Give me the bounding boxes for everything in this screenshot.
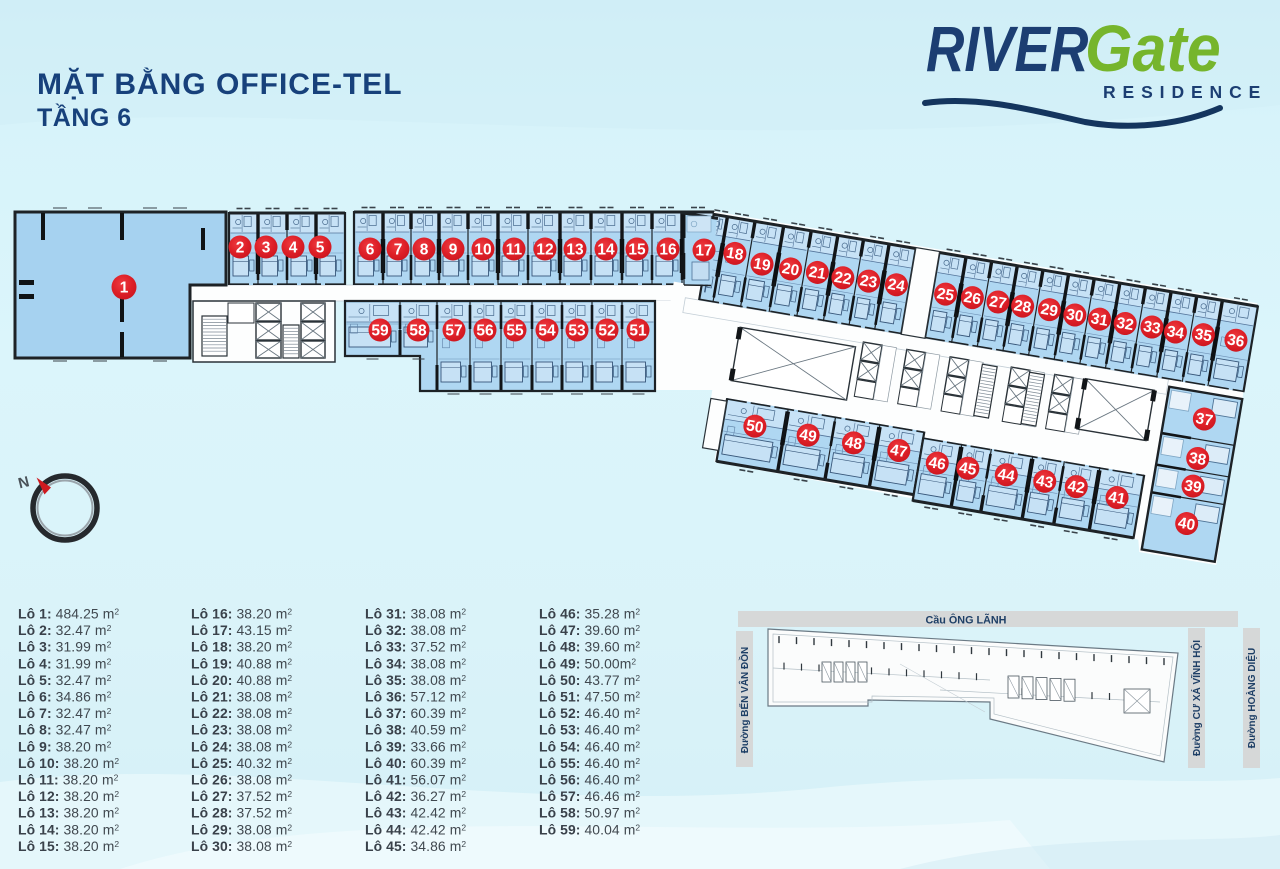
svg-text:Lô 23: 38.08 m2: Lô 23: 38.08 m2 — [191, 722, 292, 738]
svg-text:8: 8 — [420, 241, 429, 258]
svg-text:Lô 24: 38.08 m2: Lô 24: 38.08 m2 — [191, 738, 292, 754]
svg-text:43: 43 — [1035, 472, 1055, 492]
svg-text:22: 22 — [833, 269, 853, 289]
svg-text:27: 27 — [988, 293, 1008, 313]
svg-text:Lô 20: 40.88 m2: Lô 20: 40.88 m2 — [191, 672, 292, 688]
svg-text:Lô 28: 37.52 m2: Lô 28: 37.52 m2 — [191, 805, 292, 821]
svg-text:Lô 4: 31.99 m2: Lô 4: 31.99 m2 — [18, 655, 112, 671]
svg-text:Lô 56: 46.40 m2: Lô 56: 46.40 m2 — [539, 772, 640, 788]
svg-text:Lô 10: 38.20 m2: Lô 10: 38.20 m2 — [18, 755, 119, 771]
svg-text:2: 2 — [236, 239, 245, 256]
svg-text:Lô 16: 38.20 m2: Lô 16: 38.20 m2 — [191, 606, 292, 622]
svg-text:Lô 26: 38.08 m2: Lô 26: 38.08 m2 — [191, 772, 292, 788]
svg-text:Lô 45: 34.86 m2: Lô 45: 34.86 m2 — [365, 838, 466, 854]
svg-text:41: 41 — [1107, 489, 1127, 509]
svg-text:Lô 8: 32.47 m2: Lô 8: 32.47 m2 — [18, 722, 112, 738]
svg-text:Lô 34: 38.08 m2: Lô 34: 38.08 m2 — [365, 655, 466, 671]
svg-text:TẦNG 6: TẦNG 6 — [37, 103, 132, 132]
svg-text:38: 38 — [1188, 450, 1208, 470]
svg-text:23: 23 — [859, 272, 879, 292]
svg-text:Lô 46: 35.28 m2: Lô 46: 35.28 m2 — [539, 606, 640, 622]
svg-text:18: 18 — [725, 244, 745, 264]
svg-text:Lô 14: 38.20 m2: Lô 14: 38.20 m2 — [18, 821, 119, 837]
svg-text:RESIDENCE: RESIDENCE — [1103, 82, 1267, 102]
svg-text:25: 25 — [936, 285, 956, 305]
svg-text:16: 16 — [659, 241, 677, 258]
svg-text:50: 50 — [745, 417, 765, 437]
svg-text:30: 30 — [1065, 306, 1085, 326]
svg-text:6: 6 — [366, 241, 375, 258]
svg-text:15: 15 — [628, 241, 646, 258]
svg-text:Lô 9: 38.20 m2: Lô 9: 38.20 m2 — [18, 738, 112, 754]
svg-text:39: 39 — [1183, 477, 1203, 497]
svg-text:Gate: Gate — [1085, 12, 1221, 86]
svg-text:49: 49 — [798, 426, 818, 446]
svg-text:Lô 30: 38.08 m2: Lô 30: 38.08 m2 — [191, 838, 292, 854]
svg-text:Lô 38: 40.59 m2: Lô 38: 40.59 m2 — [365, 722, 466, 738]
svg-text:48: 48 — [843, 434, 863, 454]
svg-text:Lô 29: 38.08 m2: Lô 29: 38.08 m2 — [191, 821, 292, 837]
svg-text:45: 45 — [958, 459, 978, 479]
svg-text:40: 40 — [1177, 515, 1197, 535]
svg-text:26: 26 — [962, 289, 982, 309]
svg-text:44: 44 — [996, 466, 1016, 486]
svg-text:4: 4 — [289, 239, 298, 256]
svg-text:Lô 49: 50.00m2: Lô 49: 50.00m2 — [539, 655, 636, 671]
svg-text:Lô 35: 38.08 m2: Lô 35: 38.08 m2 — [365, 672, 466, 688]
svg-text:Lô 5: 32.47 m2: Lô 5: 32.47 m2 — [18, 672, 112, 688]
svg-text:Lô 40: 60.39 m2: Lô 40: 60.39 m2 — [365, 755, 466, 771]
svg-text:Lô 15: 38.20 m2: Lô 15: 38.20 m2 — [18, 838, 119, 854]
svg-text:Lô 22: 38.08 m2: Lô 22: 38.08 m2 — [191, 705, 292, 721]
svg-text:56: 56 — [476, 322, 494, 339]
svg-text:13: 13 — [566, 241, 584, 258]
svg-text:Đường HOÀNG DIỆU: Đường HOÀNG DIỆU — [1245, 648, 1258, 748]
svg-text:28: 28 — [1013, 297, 1033, 317]
svg-text:Lô 2: 32.47 m2: Lô 2: 32.47 m2 — [18, 622, 112, 638]
svg-text:Lô 32: 38.08 m2: Lô 32: 38.08 m2 — [365, 622, 466, 638]
svg-text:Lô 18: 38.20 m2: Lô 18: 38.20 m2 — [191, 639, 292, 655]
svg-text:Lô 6: 34.86 m2: Lô 6: 34.86 m2 — [18, 689, 112, 705]
svg-text:Lô 25: 40.32 m2: Lô 25: 40.32 m2 — [191, 755, 292, 771]
svg-text:Đường CƯ XÁ VĨNH HỘI: Đường CƯ XÁ VĨNH HỘI — [1190, 640, 1203, 756]
svg-text:31: 31 — [1089, 310, 1109, 330]
svg-text:Lô 55: 46.40 m2: Lô 55: 46.40 m2 — [539, 755, 640, 771]
svg-text:Lô 31: 38.08 m2: Lô 31: 38.08 m2 — [365, 606, 466, 622]
svg-text:54: 54 — [538, 322, 556, 339]
svg-text:20: 20 — [781, 260, 801, 280]
svg-text:Lô 33: 37.52 m2: Lô 33: 37.52 m2 — [365, 639, 466, 655]
svg-text:Lô 54: 46.40 m2: Lô 54: 46.40 m2 — [539, 738, 640, 754]
svg-text:Lô 13: 38.20 m2: Lô 13: 38.20 m2 — [18, 805, 119, 821]
svg-text:Lô 36: 57.12 m2: Lô 36: 57.12 m2 — [365, 689, 466, 705]
svg-text:Lô 41: 56.07 m2: Lô 41: 56.07 m2 — [365, 772, 466, 788]
svg-text:Lô 3: 31.99 m2: Lô 3: 31.99 m2 — [18, 639, 112, 655]
svg-text:MẶT BẰNG OFFICE-TEL: MẶT BẰNG OFFICE-TEL — [37, 67, 403, 101]
svg-text:35: 35 — [1193, 326, 1213, 346]
svg-text:7: 7 — [394, 241, 403, 258]
svg-text:Lô 59: 40.04 m2: Lô 59: 40.04 m2 — [539, 821, 640, 837]
svg-text:Lô 27: 37.52 m2: Lô 27: 37.52 m2 — [191, 788, 292, 804]
svg-text:1: 1 — [120, 279, 129, 296]
svg-text:Lô 51: 47.50 m2: Lô 51: 47.50 m2 — [539, 689, 640, 705]
svg-text:57: 57 — [445, 322, 462, 339]
svg-text:5: 5 — [316, 239, 325, 256]
svg-text:Lô 57: 46.46 m2: Lô 57: 46.46 m2 — [539, 788, 640, 804]
svg-text:Lô 52: 46.40 m2: Lô 52: 46.40 m2 — [539, 705, 640, 721]
svg-text:Đường BẾN VÂN ĐỒN: Đường BẾN VÂN ĐỒN — [738, 647, 751, 754]
svg-text:Lô 39: 33.66 m2: Lô 39: 33.66 m2 — [365, 738, 466, 754]
svg-text:10: 10 — [474, 241, 491, 258]
svg-text:RIVER: RIVER — [926, 14, 1089, 85]
svg-text:Lô 37: 60.39 m2: Lô 37: 60.39 m2 — [365, 705, 466, 721]
svg-text:59: 59 — [371, 322, 389, 339]
svg-text:51: 51 — [629, 322, 647, 339]
svg-text:Lô 1: 484.25 m2: Lô 1: 484.25 m2 — [18, 606, 119, 622]
svg-text:Lô 47: 39.60 m2: Lô 47: 39.60 m2 — [539, 622, 640, 638]
svg-text:Lô 7: 32.47 m2: Lô 7: 32.47 m2 — [18, 705, 112, 721]
svg-text:53: 53 — [568, 322, 586, 339]
svg-text:34: 34 — [1165, 323, 1185, 343]
svg-text:46: 46 — [927, 454, 947, 474]
svg-text:24: 24 — [886, 276, 906, 296]
svg-text:Lô 43: 42.42 m2: Lô 43: 42.42 m2 — [365, 805, 466, 821]
svg-text:Lô 58: 50.97 m2: Lô 58: 50.97 m2 — [539, 805, 640, 821]
svg-text:Lô 19: 40.88 m2: Lô 19: 40.88 m2 — [191, 655, 292, 671]
svg-text:Lô 11: 38.20 m2: Lô 11: 38.20 m2 — [18, 772, 119, 788]
svg-text:Lô 12: 38.20 m2: Lô 12: 38.20 m2 — [18, 788, 119, 804]
svg-text:Lô 48: 39.60 m2: Lô 48: 39.60 m2 — [539, 639, 640, 655]
svg-text:3: 3 — [262, 239, 271, 256]
svg-text:12: 12 — [536, 241, 553, 258]
svg-text:9: 9 — [449, 241, 458, 258]
svg-text:33: 33 — [1142, 318, 1162, 338]
svg-text:58: 58 — [409, 322, 427, 339]
svg-text:36: 36 — [1226, 331, 1246, 351]
svg-text:32: 32 — [1115, 315, 1135, 335]
svg-text:29: 29 — [1039, 301, 1059, 321]
svg-text:19: 19 — [752, 255, 772, 275]
svg-text:52: 52 — [598, 322, 615, 339]
svg-text:17: 17 — [695, 242, 712, 259]
svg-text:37: 37 — [1194, 410, 1214, 430]
svg-text:Lô 17: 43.15 m2: Lô 17: 43.15 m2 — [191, 622, 292, 638]
svg-text:Cầu ÔNG LÃNH: Cầu ÔNG LÃNH — [926, 614, 1007, 627]
svg-text:11: 11 — [506, 241, 523, 258]
svg-text:Lô 42: 36.27 m2: Lô 42: 36.27 m2 — [365, 788, 466, 804]
svg-text:Lô 53: 46.40 m2: Lô 53: 46.40 m2 — [539, 722, 640, 738]
svg-text:55: 55 — [506, 322, 524, 339]
svg-text:14: 14 — [597, 241, 615, 258]
svg-text:Lô 21: 38.08 m2: Lô 21: 38.08 m2 — [191, 689, 292, 705]
svg-text:Lô 44: 42.42 m2: Lô 44: 42.42 m2 — [365, 821, 466, 837]
svg-text:47: 47 — [889, 442, 909, 462]
svg-text:Lô 50: 43.77 m2: Lô 50: 43.77 m2 — [539, 672, 640, 688]
svg-text:21: 21 — [807, 264, 827, 284]
svg-text:42: 42 — [1066, 478, 1086, 498]
